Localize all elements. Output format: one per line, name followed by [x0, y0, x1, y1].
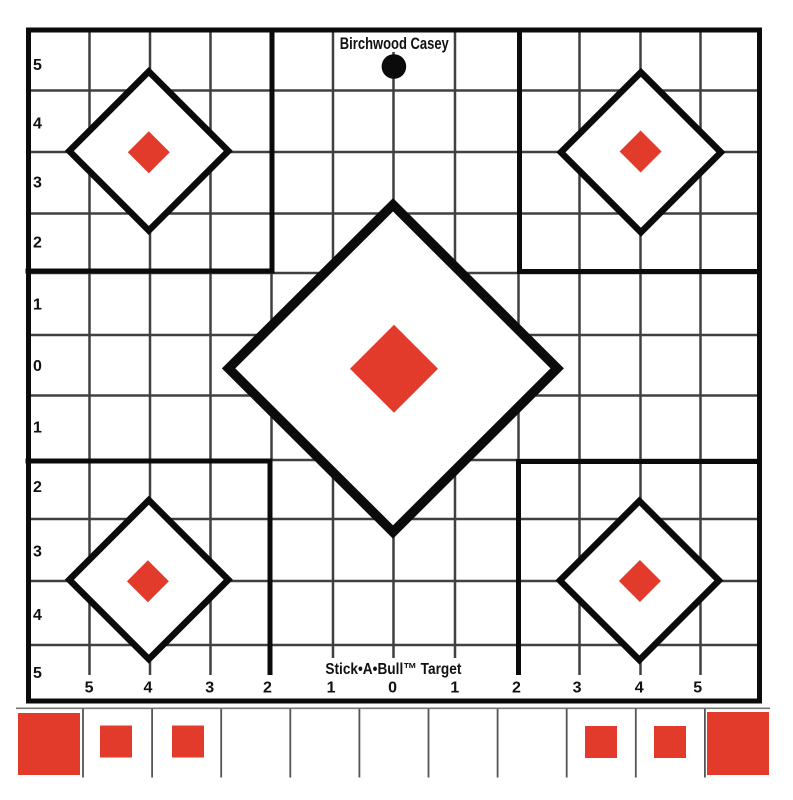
svg-text:5: 5	[693, 679, 702, 696]
svg-text:0: 0	[388, 679, 397, 696]
svg-text:5: 5	[33, 57, 42, 74]
svg-text:1: 1	[33, 420, 42, 437]
svg-text:3: 3	[33, 175, 42, 192]
svg-text:2: 2	[512, 679, 521, 696]
svg-text:4: 4	[33, 115, 42, 132]
svg-text:4: 4	[143, 679, 152, 696]
svg-text:2: 2	[33, 235, 42, 252]
svg-text:1: 1	[33, 297, 42, 314]
svg-text:0: 0	[33, 358, 42, 375]
svg-text:2: 2	[263, 679, 272, 696]
svg-text:2: 2	[33, 479, 42, 496]
svg-text:3: 3	[573, 679, 582, 696]
svg-text:3: 3	[205, 679, 214, 696]
svg-text:1: 1	[327, 679, 336, 696]
svg-text:4: 4	[635, 679, 644, 696]
svg-text:Birchwood Casey: Birchwood Casey	[340, 35, 450, 53]
svg-text:3: 3	[33, 544, 42, 561]
svg-text:5: 5	[85, 679, 94, 696]
svg-text:5: 5	[33, 665, 42, 682]
svg-text:1: 1	[450, 679, 459, 696]
svg-text:Stick•A•Bull™ Target: Stick•A•Bull™ Target	[325, 661, 462, 678]
svg-text:4: 4	[33, 607, 42, 624]
